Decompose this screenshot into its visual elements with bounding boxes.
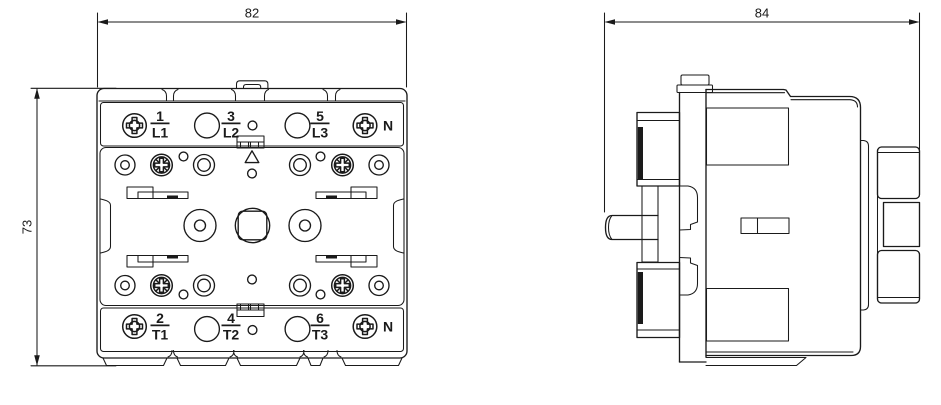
dimension-front-width: 82	[98, 6, 407, 88]
arrow-down-icon	[34, 355, 40, 366]
cable-clamp-hole-icon	[285, 317, 310, 342]
right-side-notch	[394, 199, 404, 253]
terminal-top-5: 5 L3	[285, 108, 329, 141]
side-foot	[706, 358, 806, 366]
clip-cutout-upper	[680, 186, 698, 230]
terminal-row-bottom: 2 T1 4 T2 6 T3 N	[123, 310, 393, 343]
pilot-hole-icon	[179, 152, 188, 161]
arrow-up-icon	[34, 88, 40, 99]
contact-ring-icon	[290, 155, 311, 176]
upper-left-slider	[127, 187, 188, 199]
pilot-hole-icon	[316, 152, 325, 161]
pilot-hole-icon	[248, 169, 257, 178]
side-view	[606, 75, 920, 366]
dimension-side-width: 84	[605, 6, 920, 213]
pozidriv-screw-icon	[151, 154, 173, 176]
arrow-right-icon	[396, 19, 407, 25]
drawing-canvas: 1 L1 3 L2 5 L3	[0, 0, 941, 405]
terminal-pin: 3	[227, 108, 235, 124]
contact-hole-icon	[115, 276, 135, 296]
contact-hole-icon	[115, 155, 135, 175]
screw-terminal-icon	[123, 114, 147, 138]
left-side-notch	[101, 199, 111, 253]
dimension-value: 84	[755, 6, 769, 21]
screw-terminal-icon	[353, 315, 377, 339]
front-feet	[103, 358, 402, 366]
upper-right-slider	[316, 187, 377, 199]
contact-hole-icon	[369, 155, 389, 175]
pole-hole-icon	[184, 210, 216, 242]
contact-hole-icon	[369, 276, 389, 296]
arrow-left-icon	[605, 19, 616, 25]
pilot-hole-icon	[179, 290, 188, 299]
arrow-right-icon	[909, 19, 920, 25]
side-front-strip	[677, 75, 713, 362]
side-window	[741, 218, 789, 234]
terminal-row-top: 1 L1 3 L2 5 L3	[123, 108, 393, 148]
arrow-left-icon	[98, 19, 109, 25]
terminal-pin: 4	[227, 310, 235, 326]
terminal-bottom-n: N	[353, 315, 393, 339]
screw-terminal-icon	[353, 114, 377, 138]
terminal-label: T1	[152, 327, 169, 343]
terminal-label: N	[383, 118, 393, 134]
pozidriv-screw-icon	[332, 275, 354, 297]
actuator-rod	[606, 216, 659, 240]
indicator-triangle-icon	[245, 151, 259, 163]
side-left-terminal-bottom	[637, 263, 680, 338]
side-terminal-connector	[642, 186, 658, 262]
screw-terminal-icon	[123, 315, 147, 339]
side-label-area-bottom	[707, 289, 789, 342]
dimension-front-height: 73	[20, 88, 117, 366]
front-middle-panel	[100, 148, 404, 306]
clip-cutout-lower	[680, 258, 698, 296]
contact-ring-icon	[194, 275, 215, 296]
terminal-label: N	[383, 319, 393, 335]
terminal-pin: 6	[316, 310, 324, 326]
center-shaft-icon	[235, 208, 269, 242]
pole-hole-icon	[289, 210, 321, 242]
terminal-bottom-2: 2 T1	[123, 310, 170, 343]
side-housing	[706, 90, 861, 366]
lower-left-slider	[127, 256, 188, 268]
terminal-top-n: N	[353, 114, 393, 138]
contact-ring-icon	[290, 275, 311, 296]
side-label-area-top	[707, 108, 789, 165]
contact-ring-icon	[194, 155, 215, 176]
side-right-terminal-block	[861, 141, 920, 311]
lower-right-slider	[316, 256, 377, 268]
terminal-bottom-6: 6 T3	[285, 310, 329, 343]
pilot-hole-icon	[248, 121, 257, 130]
top-mounting-tab-icon	[237, 81, 268, 89]
pilot-hole-icon	[248, 275, 257, 284]
terminal-pin: 2	[156, 310, 164, 326]
front-view: 1 L1 3 L2 5 L3	[97, 81, 407, 366]
terminal-label: T3	[312, 327, 329, 343]
dimension-value: 73	[20, 220, 35, 234]
terminal-pin: 5	[316, 108, 324, 124]
terminal-top-3: 3 L2	[195, 108, 241, 141]
terminal-label: T2	[223, 327, 240, 343]
terminal-bottom-4: 4 T2	[195, 310, 241, 343]
cable-clamp-hole-icon	[195, 113, 220, 138]
contactor-dimension-drawing: 1 L1 3 L2 5 L3	[0, 0, 941, 405]
side-left-terminal-top	[637, 113, 680, 187]
terminal-pin: 1	[156, 108, 164, 124]
front-top-band	[99, 90, 405, 102]
terminal-label: L1	[152, 125, 169, 141]
cable-clamp-hole-icon	[195, 317, 220, 342]
side-mounting-tab-icon	[681, 75, 709, 85]
pilot-hole-icon	[248, 326, 257, 335]
pozidriv-screw-icon	[332, 154, 354, 176]
dimension-value: 82	[245, 6, 259, 21]
terminal-top-1: 1 L1	[123, 108, 170, 141]
pozidriv-screw-icon	[151, 275, 173, 297]
pilot-hole-icon	[316, 290, 325, 299]
cable-clamp-hole-icon	[285, 113, 310, 138]
terminal-label: L3	[312, 125, 329, 141]
front-middle-content	[115, 151, 389, 299]
